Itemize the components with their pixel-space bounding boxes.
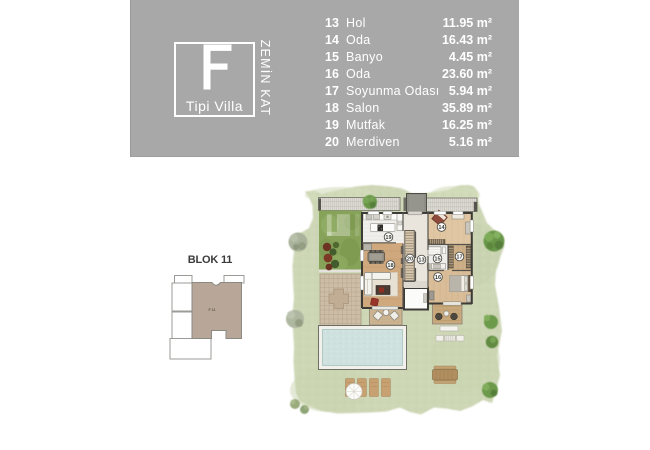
svg-text:18: 18: [387, 263, 393, 269]
svg-text:14: 14: [438, 225, 445, 231]
svg-text:17: 17: [456, 255, 462, 261]
svg-text:F 11: F 11: [209, 308, 216, 312]
svg-text:20: 20: [407, 257, 413, 263]
svg-text:16: 16: [435, 275, 441, 281]
svg-text:19: 19: [385, 235, 391, 241]
svg-text:15: 15: [434, 257, 440, 263]
svg-text:13: 13: [418, 258, 424, 264]
